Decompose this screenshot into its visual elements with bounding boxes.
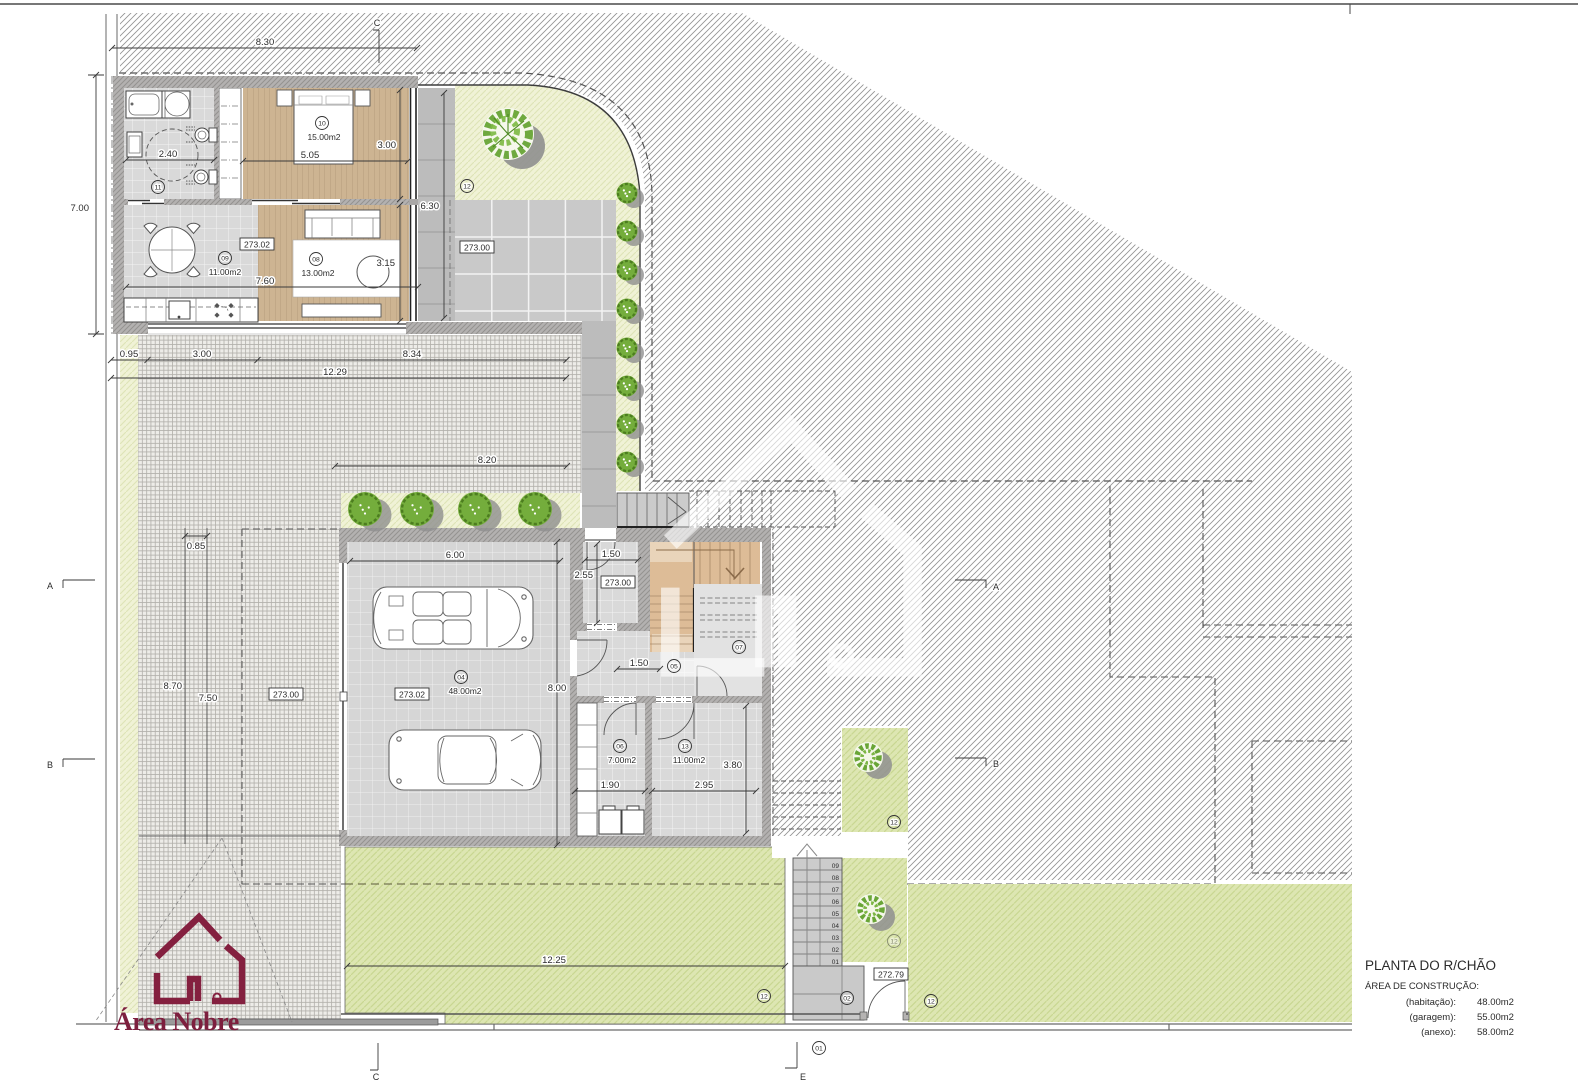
svg-text:06: 06 <box>832 899 840 906</box>
svg-text:15.00m2: 15.00m2 <box>307 132 340 142</box>
svg-text:8.70: 8.70 <box>164 681 183 692</box>
svg-text:1.90: 1.90 <box>601 780 620 791</box>
svg-text:48.00m2: 48.00m2 <box>448 686 481 696</box>
svg-text:08: 08 <box>832 875 840 882</box>
svg-text:12: 12 <box>927 999 935 1006</box>
svg-text:C: C <box>373 1072 380 1080</box>
svg-text:5.05: 5.05 <box>301 150 320 161</box>
svg-text:3.00: 3.00 <box>193 349 212 360</box>
svg-text:B: B <box>47 760 53 770</box>
svg-text:7.60: 7.60 <box>256 276 275 287</box>
svg-text:48.00m2: 48.00m2 <box>1477 997 1514 1008</box>
svg-text:09: 09 <box>221 256 229 263</box>
svg-text:2.95: 2.95 <box>695 780 714 791</box>
svg-text:Área Nobre: Área Nobre <box>114 1007 239 1036</box>
svg-text:0.85: 0.85 <box>187 541 206 552</box>
svg-text:3.00: 3.00 <box>378 140 397 151</box>
svg-text:13.00m2: 13.00m2 <box>301 268 334 278</box>
svg-text:273.00: 273.00 <box>464 243 490 253</box>
svg-text:8.20: 8.20 <box>478 455 497 466</box>
svg-text:2.55: 2.55 <box>575 570 594 581</box>
svg-text:12: 12 <box>890 939 898 946</box>
svg-text:A: A <box>47 581 53 591</box>
svg-text:10: 10 <box>318 121 326 128</box>
svg-text:12: 12 <box>463 184 471 191</box>
svg-text:(habitação):: (habitação): <box>1406 997 1456 1008</box>
svg-text:B: B <box>993 759 999 769</box>
svg-text:11.00m2: 11.00m2 <box>673 755 706 765</box>
svg-text:11: 11 <box>154 185 161 192</box>
svg-text:05: 05 <box>832 911 840 918</box>
svg-text:ÁREA DE CONSTRUÇÃO:: ÁREA DE CONSTRUÇÃO: <box>1365 981 1479 992</box>
svg-text:1.50: 1.50 <box>602 549 621 560</box>
svg-text:3.80: 3.80 <box>724 760 743 771</box>
svg-text:PLANTA DO R/CHÃO: PLANTA DO R/CHÃO <box>1365 958 1496 973</box>
svg-text:7.50: 7.50 <box>199 693 218 704</box>
svg-text:08: 08 <box>312 257 320 264</box>
svg-text:13: 13 <box>681 744 689 751</box>
svg-text:05: 05 <box>670 664 678 671</box>
svg-text:7.00m2: 7.00m2 <box>608 755 637 765</box>
svg-text:02: 02 <box>832 947 840 954</box>
svg-text:03: 03 <box>832 935 840 942</box>
svg-text:8.34: 8.34 <box>403 349 422 360</box>
svg-text:04: 04 <box>457 675 465 682</box>
svg-text:07: 07 <box>735 645 743 652</box>
svg-text:E: E <box>800 1072 806 1080</box>
svg-text:07: 07 <box>832 887 840 894</box>
svg-text:58.00m2: 58.00m2 <box>1477 1027 1514 1038</box>
svg-text:06: 06 <box>616 744 624 751</box>
svg-text:12: 12 <box>890 820 898 827</box>
svg-text:1.50: 1.50 <box>630 658 649 669</box>
svg-text:3.15: 3.15 <box>377 258 396 269</box>
svg-text:7.00: 7.00 <box>71 203 90 214</box>
svg-text:2.40: 2.40 <box>159 149 178 160</box>
svg-text:273.00: 273.00 <box>605 578 631 588</box>
svg-text:12: 12 <box>760 994 768 1001</box>
svg-text:01: 01 <box>832 959 840 966</box>
svg-text:01: 01 <box>815 1046 823 1053</box>
svg-text:04: 04 <box>832 923 840 930</box>
svg-text:09: 09 <box>832 863 840 870</box>
svg-text:12.25: 12.25 <box>542 955 566 966</box>
svg-text:11.00m2: 11.00m2 <box>209 267 242 277</box>
svg-text:272.79: 272.79 <box>878 970 904 980</box>
svg-text:8.00: 8.00 <box>548 683 567 694</box>
svg-text:6.00: 6.00 <box>446 550 465 561</box>
svg-text:(garagem):: (garagem): <box>1410 1012 1456 1023</box>
svg-text:A: A <box>993 582 999 592</box>
svg-text:0.95: 0.95 <box>120 349 139 360</box>
svg-text:8.30: 8.30 <box>256 37 275 48</box>
svg-text:02: 02 <box>843 996 851 1003</box>
svg-text:273.02: 273.02 <box>399 690 425 700</box>
svg-text:C: C <box>374 18 381 28</box>
svg-text:12.29: 12.29 <box>323 367 347 378</box>
svg-text:6.30: 6.30 <box>421 201 440 212</box>
svg-text:55.00m2: 55.00m2 <box>1477 1012 1514 1023</box>
svg-text:(anexo):: (anexo): <box>1421 1027 1456 1038</box>
svg-text:273.00: 273.00 <box>273 690 299 700</box>
svg-text:273.02: 273.02 <box>244 240 270 250</box>
